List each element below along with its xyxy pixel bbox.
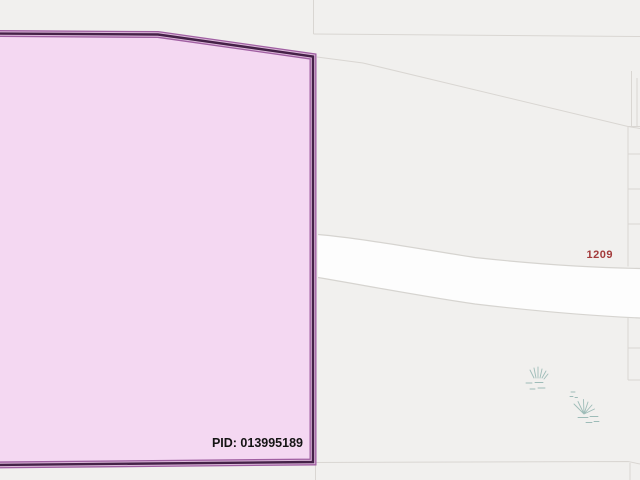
road-number-label: 1209	[587, 249, 613, 261]
map-canvas[interactable]: 1209 PID: 013995189	[0, 0, 640, 480]
map-viewport[interactable]: 1209 PID: 013995189	[0, 0, 640, 480]
parcel-shape[interactable]	[0, 34, 313, 466]
selected-parcel[interactable]	[0, 34, 313, 466]
parcel-pid-label: PID: 013995189	[212, 436, 303, 450]
